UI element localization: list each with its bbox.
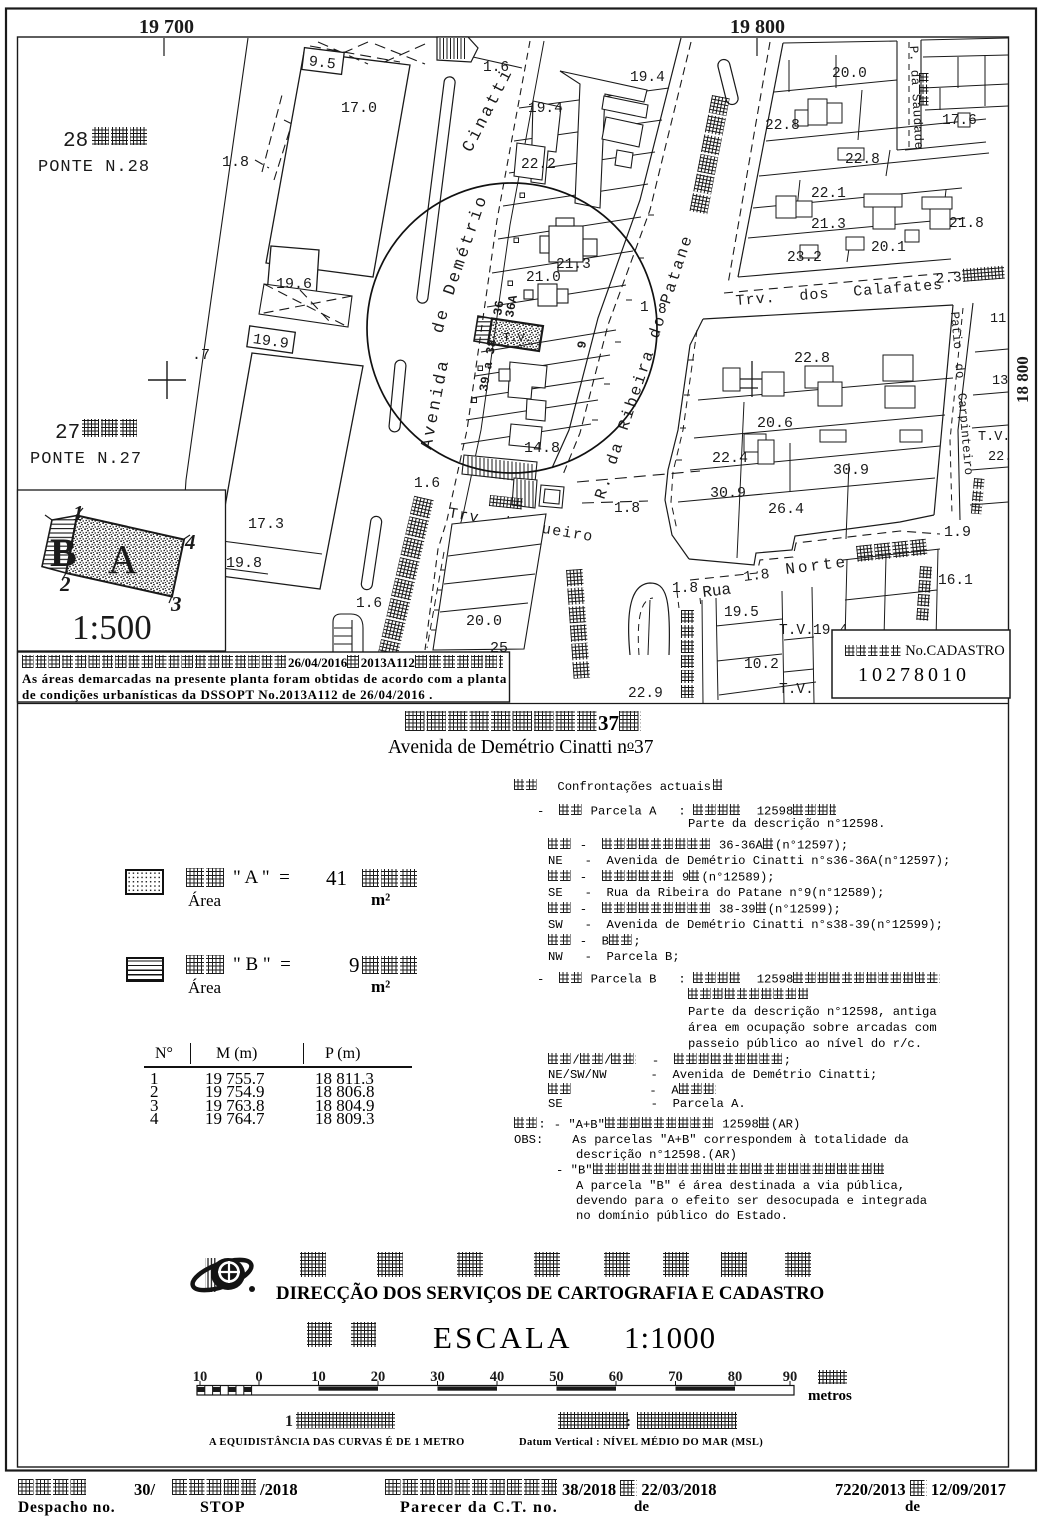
svg-text:R. da Ribeira do Patane: R. da Ribeira do Patane bbox=[592, 232, 698, 502]
svg-text:30.9: 30.9 bbox=[833, 462, 869, 479]
svg-text:de: de bbox=[429, 305, 454, 335]
svg-text:19.5: 19.5 bbox=[724, 605, 759, 621]
svg-text:Cinatti: Cinatti bbox=[459, 65, 518, 156]
svg-text:10: 10 bbox=[311, 1369, 326, 1385]
svg-text:28: 28 bbox=[63, 130, 88, 153]
svg-text:18 800: 18 800 bbox=[1013, 356, 1032, 403]
svg-text:1: 1 bbox=[640, 300, 649, 316]
svg-text:Norte: Norte bbox=[784, 553, 849, 579]
svg-text:3: 3 bbox=[170, 592, 182, 616]
svg-text:1.8: 1.8 bbox=[222, 154, 249, 171]
svg-text:19.4: 19.4 bbox=[528, 101, 563, 117]
svg-text:19 800: 19 800 bbox=[730, 16, 785, 38]
svg-text:22.9: 22.9 bbox=[628, 686, 663, 702]
svg-text:90: 90 bbox=[783, 1369, 798, 1385]
svg-text:19.4: 19.4 bbox=[630, 70, 665, 86]
svg-text:9.5: 9.5 bbox=[308, 53, 337, 73]
svg-text:19 700: 19 700 bbox=[139, 16, 194, 38]
svg-text:1.6: 1.6 bbox=[414, 476, 440, 492]
svg-text:20.6: 20.6 bbox=[757, 415, 793, 432]
svg-text:0: 0 bbox=[255, 1369, 262, 1385]
svg-text:21.3: 21.3 bbox=[811, 217, 846, 233]
svg-text:22.8: 22.8 bbox=[845, 152, 880, 168]
svg-text:36A: 36A bbox=[503, 294, 521, 319]
svg-text:1.8: 1.8 bbox=[614, 501, 640, 517]
svg-text:9: 9 bbox=[575, 340, 590, 350]
svg-text:PONTE N.28: PONTE N.28 bbox=[38, 158, 150, 177]
svg-text:19.9: 19.9 bbox=[252, 331, 290, 353]
svg-text:22.8: 22.8 bbox=[765, 118, 800, 134]
svg-text:Demétrio: Demétrio bbox=[441, 192, 493, 298]
svg-text:60: 60 bbox=[609, 1369, 624, 1385]
svg-text:16.1: 16.1 bbox=[938, 573, 973, 589]
svg-text:27: 27 bbox=[55, 422, 80, 445]
svg-text:17.3: 17.3 bbox=[248, 516, 284, 533]
svg-text:1.8: 1.8 bbox=[743, 567, 771, 586]
svg-text:1.8: 1.8 bbox=[672, 581, 698, 597]
svg-text::: : bbox=[626, 1414, 631, 1430]
svg-text:11: 11 bbox=[990, 312, 1006, 327]
svg-text:22.2: 22.2 bbox=[521, 157, 556, 173]
svg-text:T.V.: T.V. bbox=[503, 331, 532, 345]
svg-text:20.1: 20.1 bbox=[871, 240, 906, 256]
svg-text:13: 13 bbox=[992, 374, 1008, 389]
svg-text:1: 1 bbox=[285, 1413, 293, 1430]
svg-text:T.V.: T.V. bbox=[779, 623, 814, 639]
svg-text:26.4: 26.4 bbox=[768, 501, 804, 518]
svg-text:40: 40 bbox=[490, 1369, 505, 1385]
svg-text:30: 30 bbox=[430, 1369, 445, 1385]
svg-text:1:500: 1:500 bbox=[72, 608, 152, 647]
svg-text:10: 10 bbox=[193, 1369, 208, 1385]
svg-text:A: A bbox=[108, 536, 138, 582]
svg-text:20: 20 bbox=[371, 1369, 386, 1385]
svg-text:B: B bbox=[50, 530, 77, 575]
svg-text:21.8: 21.8 bbox=[949, 216, 984, 232]
svg-text:1.9: 1.9 bbox=[944, 524, 971, 541]
svg-text:14.8: 14.8 bbox=[524, 440, 560, 457]
svg-text:17.6: 17.6 bbox=[942, 113, 977, 129]
svg-text:20.0: 20.0 bbox=[832, 66, 867, 82]
svg-text:22.4: 22.4 bbox=[712, 450, 748, 467]
svg-text:21.3: 21.3 bbox=[556, 257, 591, 273]
svg-text:PONTE N.27: PONTE N.27 bbox=[30, 450, 142, 469]
svg-text:70: 70 bbox=[668, 1369, 683, 1385]
svg-text:T.V.: T.V. bbox=[779, 682, 814, 698]
svg-text:22.1: 22.1 bbox=[811, 186, 846, 202]
svg-text:Avenida: Avenida bbox=[418, 357, 454, 451]
svg-text:22.8: 22.8 bbox=[794, 350, 830, 367]
svg-text:Rua: Rua bbox=[701, 581, 732, 602]
svg-text:Trv. dos Calafates: Trv. dos Calafates bbox=[735, 277, 944, 310]
svg-text:80: 80 bbox=[728, 1369, 743, 1385]
svg-text:1.6: 1.6 bbox=[356, 596, 382, 612]
svg-text:T.V.: T.V. bbox=[978, 430, 1010, 445]
svg-text:39 a 38: 39 a 38 bbox=[477, 339, 500, 393]
svg-text:Patio do Carpinteiro: Patio do Carpinteiro bbox=[947, 311, 975, 476]
svg-text:20.0: 20.0 bbox=[466, 613, 502, 630]
svg-text:2.3: 2.3 bbox=[935, 270, 962, 288]
svg-text:22.: 22. bbox=[988, 450, 1012, 465]
svg-text:.7: .7 bbox=[192, 347, 210, 364]
svg-text:1.6: 1.6 bbox=[483, 60, 509, 76]
svg-text:17.0: 17.0 bbox=[341, 100, 377, 117]
svg-text:8: 8 bbox=[658, 302, 667, 318]
svg-text:50: 50 bbox=[549, 1369, 564, 1385]
svg-text:30.9: 30.9 bbox=[710, 485, 746, 502]
svg-text:23.2: 23.2 bbox=[787, 250, 822, 266]
svg-text:4: 4 bbox=[184, 530, 196, 554]
svg-text:19.6: 19.6 bbox=[276, 276, 312, 293]
svg-text:10.2: 10.2 bbox=[744, 657, 779, 673]
svg-text:19.8: 19.8 bbox=[226, 555, 262, 572]
